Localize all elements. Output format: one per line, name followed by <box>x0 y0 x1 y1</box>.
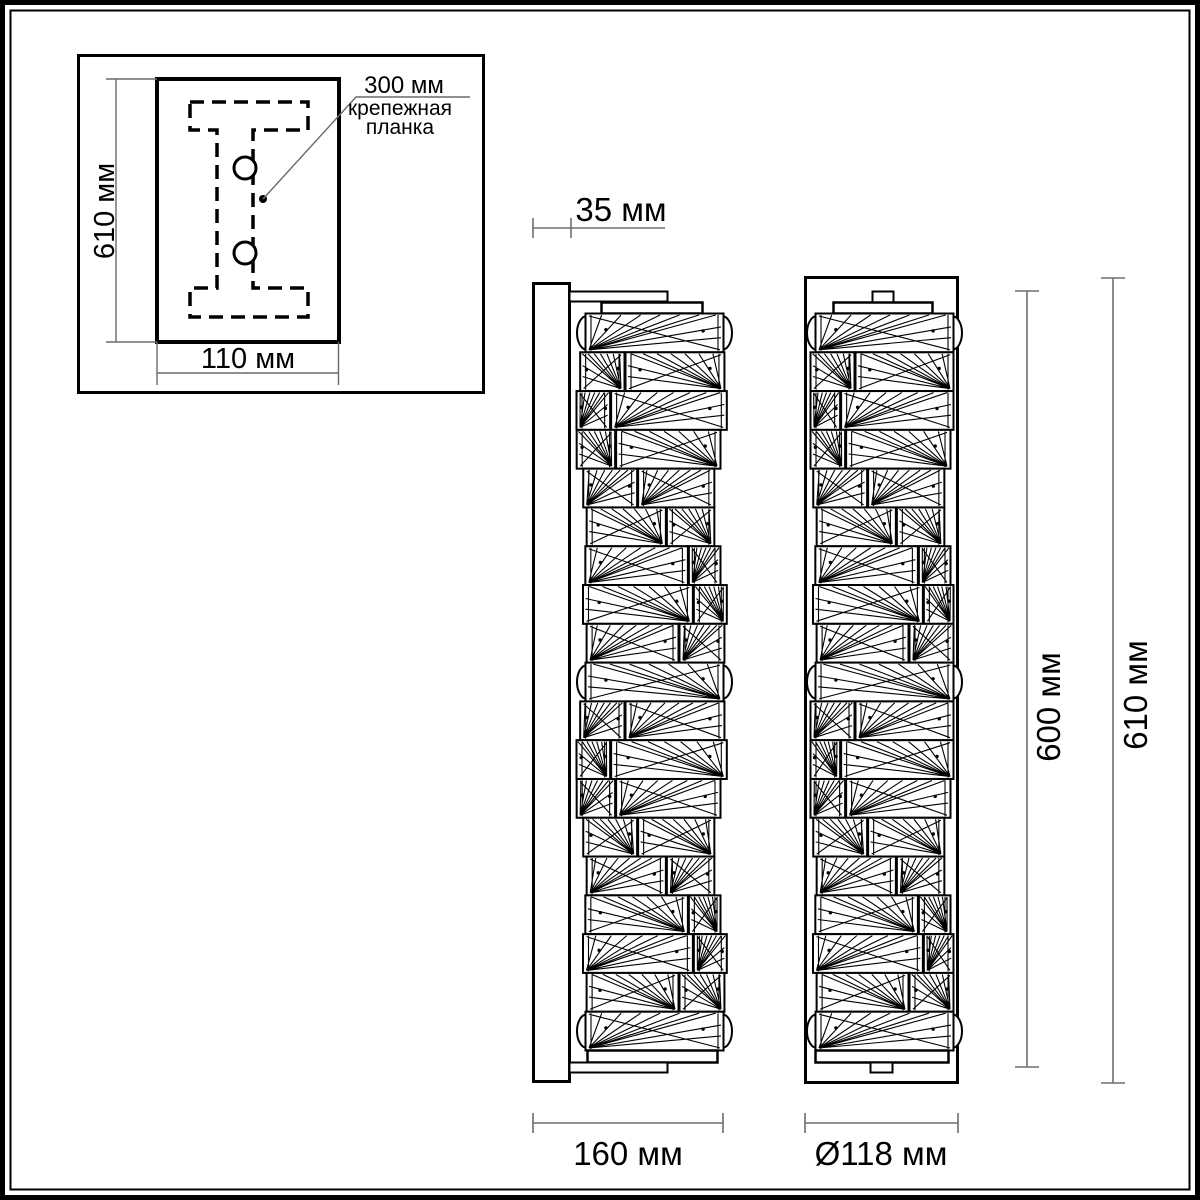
crystal-block <box>587 973 679 1012</box>
side-bottom-canopy <box>816 1051 949 1063</box>
crystal-block <box>586 1012 724 1051</box>
top-canopy <box>602 303 703 314</box>
side-top-tab <box>873 292 894 303</box>
front-depth-dimension: 35 мм <box>533 191 667 238</box>
crystal-block <box>816 663 954 702</box>
crystal-block <box>577 740 611 779</box>
crystal-block <box>585 895 688 934</box>
crystal-block <box>587 507 666 546</box>
lamp-front-view: 35 мм 160 мм <box>533 191 732 1172</box>
front-width-dimension: 160 мм <box>533 1113 723 1172</box>
inset-width-label: 110 мм <box>201 343 295 375</box>
crystal-block <box>856 352 954 391</box>
bottom-canopy <box>588 1051 718 1063</box>
crystal-block <box>816 1012 954 1051</box>
crystal-block <box>841 391 953 430</box>
crystal-block <box>679 973 724 1012</box>
crystal-block <box>694 585 727 624</box>
callout-value-label: 300 мм <box>364 72 444 99</box>
crystal-block <box>580 701 624 740</box>
crystal-block <box>817 973 909 1012</box>
crystal-block <box>811 391 841 430</box>
crystal-block <box>583 934 693 973</box>
mounting-hole-bottom <box>234 242 256 264</box>
front-width-label: 160 мм <box>573 1135 683 1172</box>
crystal-block <box>689 895 721 934</box>
crystal-block <box>856 701 954 740</box>
crystal-block <box>924 585 954 624</box>
crystal-stack-side-view <box>807 314 962 1051</box>
side-bottom-tab <box>871 1063 893 1073</box>
crystal-block <box>611 740 727 779</box>
crystal-block <box>868 469 944 508</box>
crystal-block <box>841 740 953 779</box>
mounting-plate-inset: 300 мм крепежная планка 610 мм 110 мм <box>79 56 484 393</box>
crystal-block <box>626 352 725 391</box>
crystal-block <box>616 430 720 469</box>
total-height-dimension: 610 мм <box>1101 278 1154 1083</box>
crystal-block <box>813 585 923 624</box>
crystal-block <box>813 934 923 973</box>
crystal-block <box>811 352 855 391</box>
crystal-block <box>679 624 724 663</box>
crystal-block <box>811 779 846 818</box>
crystal-block <box>897 507 944 546</box>
side-diameter-dimension: Ø118 мм <box>805 1113 958 1172</box>
callout-name-line2: планка <box>366 116 435 139</box>
crystal-block <box>846 779 950 818</box>
crystal-block <box>813 818 867 857</box>
top-mount-arm <box>570 292 668 302</box>
total-height-label: 610 мм <box>1117 640 1154 750</box>
crystal-block <box>577 779 615 818</box>
crystal-block <box>817 857 896 896</box>
dimension-drawing-page: 300 мм крепежная планка 610 мм 110 мм <box>0 0 1200 1200</box>
mounting-plate-outline <box>157 79 339 342</box>
crystal-block <box>816 314 954 353</box>
bottom-mount-arm <box>570 1063 668 1073</box>
crystal-block <box>817 624 909 663</box>
crystal-block <box>638 469 714 508</box>
crystal-block <box>924 934 954 973</box>
crystal-block <box>586 314 724 353</box>
crystal-block <box>811 740 841 779</box>
inset-height-dimension: 610 мм <box>89 79 157 342</box>
crystal-block <box>583 585 693 624</box>
crystal-block <box>694 934 727 973</box>
crystal-block <box>897 857 944 896</box>
lamp-height-label: 600 мм <box>1030 652 1067 762</box>
crystal-block <box>577 430 615 469</box>
side-diameter-label: Ø118 мм <box>815 1135 948 1172</box>
crystal-block <box>817 507 896 546</box>
crystal-block <box>667 857 714 896</box>
crystal-block <box>815 895 918 934</box>
crystal-block <box>909 624 953 663</box>
side-top-canopy <box>834 303 933 314</box>
wall-plate <box>534 284 570 1082</box>
crystal-block <box>583 818 637 857</box>
crystal-block <box>587 624 679 663</box>
crystal-block <box>577 391 611 430</box>
crystal-block <box>689 546 721 585</box>
crystal-stack-front-view <box>577 314 733 1051</box>
technical-drawing: 300 мм крепежная планка 610 мм 110 мм <box>0 0 1200 1200</box>
crystal-block <box>811 701 855 740</box>
front-depth-label: 35 мм <box>575 191 666 228</box>
crystal-block <box>846 430 950 469</box>
crystal-block <box>626 701 725 740</box>
crystal-block <box>919 546 951 585</box>
crystal-block <box>583 469 637 508</box>
crystal-block <box>585 546 688 585</box>
crystal-block <box>813 469 867 508</box>
crystal-block <box>919 895 951 934</box>
inset-height-label: 610 мм <box>89 163 121 259</box>
crystal-block <box>611 391 727 430</box>
crystal-block <box>586 663 724 702</box>
crystal-block <box>868 818 944 857</box>
crystal-block <box>587 857 666 896</box>
crystal-block <box>667 507 714 546</box>
crystal-block <box>616 779 720 818</box>
crystal-block <box>815 546 918 585</box>
lamp-side-view: Ø118 мм 600 мм 610 мм <box>805 278 1154 1173</box>
lamp-height-dimension: 600 мм <box>1015 291 1067 1067</box>
mounting-hole-top <box>234 157 256 179</box>
crystal-block <box>580 352 624 391</box>
crystal-block <box>909 973 953 1012</box>
inset-width-dimension: 110 мм <box>157 342 339 385</box>
crystal-block <box>638 818 714 857</box>
crystal-block <box>811 430 846 469</box>
